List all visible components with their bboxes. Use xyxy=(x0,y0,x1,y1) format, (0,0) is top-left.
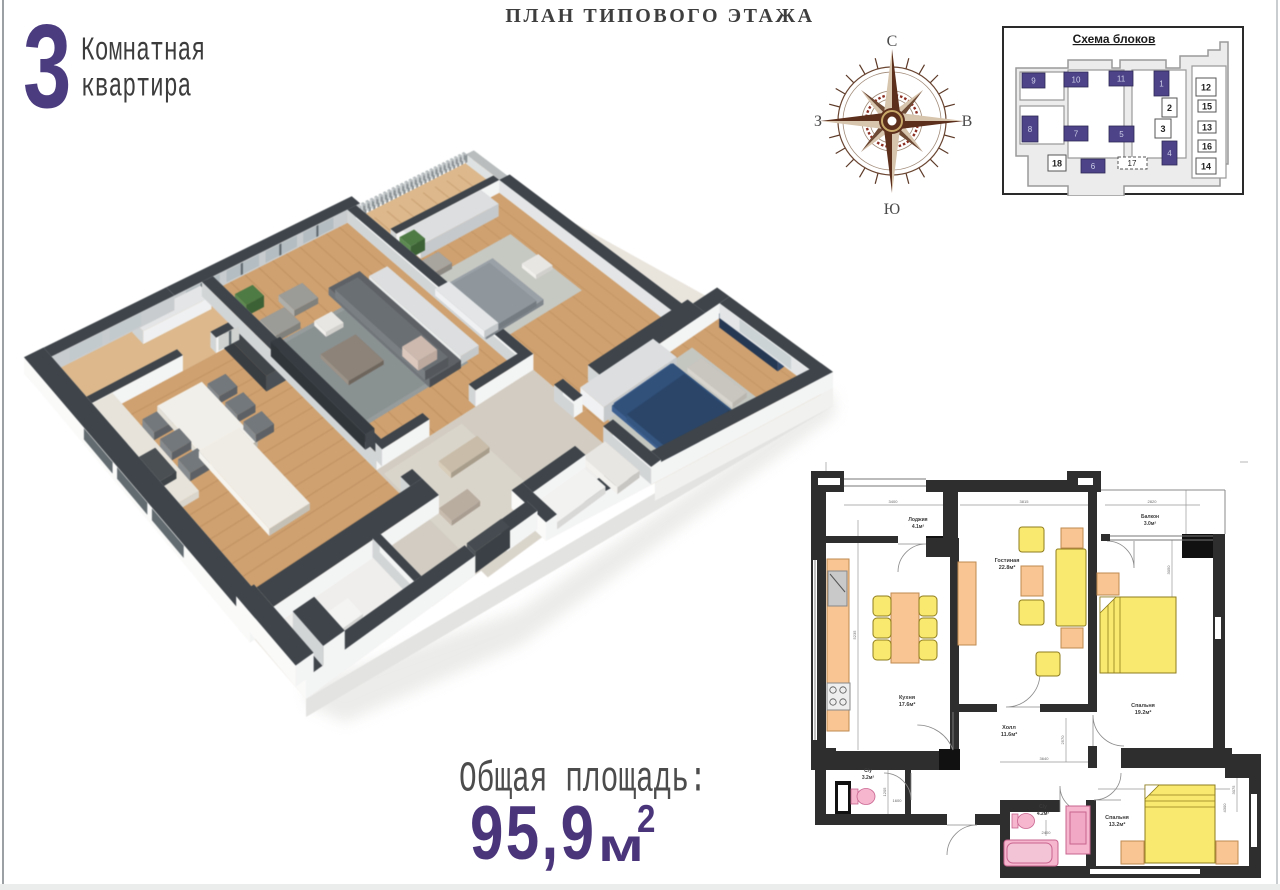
svg-text:3.0м²: 3.0м² xyxy=(1144,521,1157,527)
svg-text:4300: 4300 xyxy=(1222,803,1227,813)
svg-text:4.2м²: 4.2м² xyxy=(1037,811,1050,817)
svg-text:3400: 3400 xyxy=(889,499,899,504)
svg-text:3640: 3640 xyxy=(1040,756,1050,761)
svg-text:3075: 3075 xyxy=(1231,785,1236,795)
svg-text:Холл: Холл xyxy=(1002,725,1016,731)
svg-text:5235: 5235 xyxy=(852,630,857,640)
svg-text:3050: 3050 xyxy=(1166,565,1171,575)
svg-text:С/у: С/у xyxy=(1039,804,1047,810)
svg-text:19.2м²: 19.2м² xyxy=(1135,709,1152,716)
svg-text:Лоджия: Лоджия xyxy=(908,517,927,523)
svg-text:3815: 3815 xyxy=(1020,499,1030,504)
svg-text:1205: 1205 xyxy=(882,787,887,797)
svg-text:Спальня: Спальня xyxy=(1105,815,1129,821)
svg-text:Спальня: Спальня xyxy=(1131,703,1155,709)
svg-text:С/у: С/у xyxy=(864,768,872,774)
svg-text:11.6м²: 11.6м² xyxy=(1001,731,1017,738)
svg-text:4.1м²: 4.1м² xyxy=(912,524,925,530)
svg-text:Балкон: Балкон xyxy=(1141,514,1159,520)
svg-text:2400: 2400 xyxy=(1042,830,1052,835)
svg-text:22.8м²: 22.8м² xyxy=(999,564,1016,571)
svg-text:3.2м²: 3.2м² xyxy=(862,775,875,781)
svg-text:Гостиная: Гостиная xyxy=(995,558,1020,564)
svg-text:13.2м²: 13.2м² xyxy=(1109,821,1126,828)
svg-text:2820: 2820 xyxy=(1148,499,1158,504)
svg-text:Кухня: Кухня xyxy=(899,695,915,701)
svg-text:2570: 2570 xyxy=(1060,735,1065,745)
svg-text:17.6м²: 17.6м² xyxy=(899,701,916,708)
svg-text:1600: 1600 xyxy=(893,798,903,803)
